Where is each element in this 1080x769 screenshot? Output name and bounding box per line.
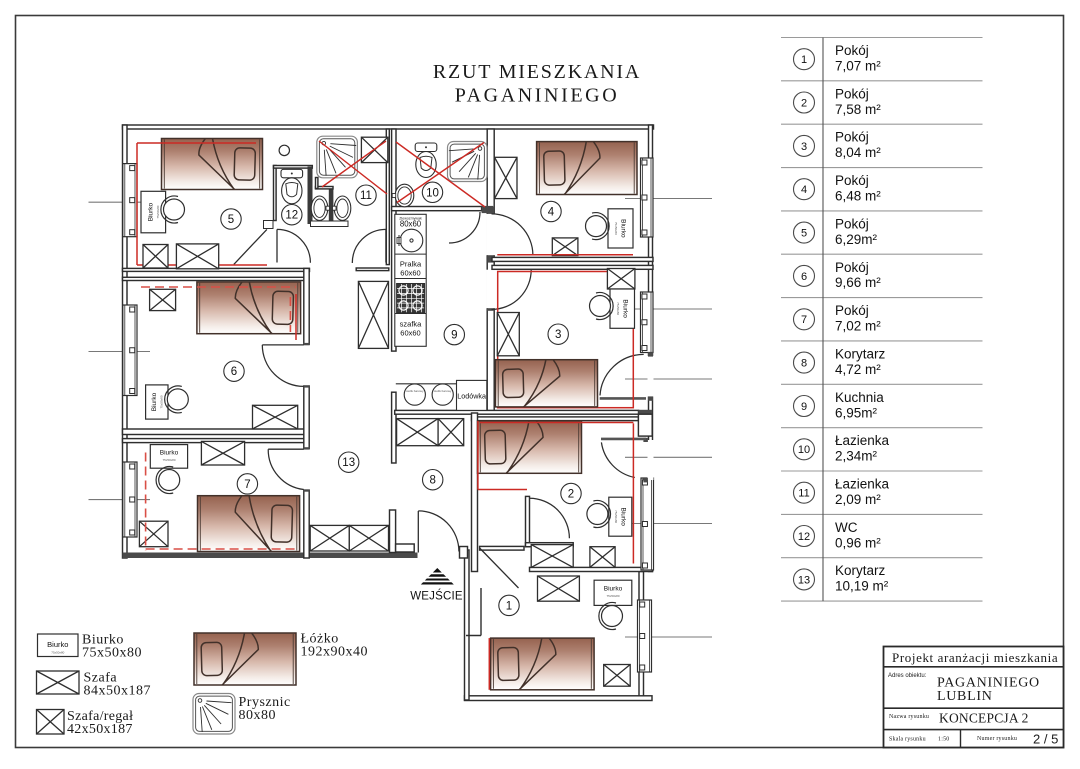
svg-text:80x60: 80x60 (400, 220, 422, 229)
svg-text:10: 10 (426, 187, 439, 199)
svg-text:9,66 m²: 9,66 m² (835, 275, 881, 290)
svg-text:2,34m²: 2,34m² (835, 449, 878, 464)
svg-text:12: 12 (798, 531, 810, 543)
svg-text:7: 7 (801, 314, 807, 326)
svg-text:Pokój: Pokój (835, 43, 869, 58)
svg-text:9: 9 (801, 401, 807, 413)
svg-text:75x50x80: 75x50x80 (606, 594, 619, 598)
svg-text:75x50x80: 75x50x80 (616, 302, 620, 315)
svg-text:10: 10 (798, 444, 810, 456)
svg-text:Pralka: Pralka (400, 260, 422, 269)
svg-text:Korytarz: Korytarz (835, 563, 886, 578)
svg-text:12: 12 (285, 210, 298, 222)
svg-text:8: 8 (801, 358, 807, 370)
svg-text:3: 3 (801, 141, 807, 153)
svg-text:13: 13 (342, 457, 355, 469)
svg-text:Pokój: Pokój (835, 173, 869, 188)
svg-text:7,07 m²: 7,07 m² (835, 59, 881, 74)
svg-text:KONCEPCJA 2: KONCEPCJA 2 (939, 711, 1029, 726)
svg-text:Pokój: Pokój (835, 130, 869, 145)
svg-text:6,95m²: 6,95m² (835, 405, 878, 420)
svg-text:75x50x80: 75x50x80 (614, 222, 618, 235)
svg-text:7: 7 (244, 479, 250, 491)
svg-text:0,96 m²: 0,96 m² (835, 535, 881, 550)
svg-text:75x50x80: 75x50x80 (614, 510, 618, 523)
svg-text:Lodówka: Lodówka (457, 392, 486, 401)
svg-text:10,19 m²: 10,19 m² (835, 579, 889, 594)
svg-text:Kuchnia: Kuchnia (835, 390, 884, 405)
svg-text:84x50x187: 84x50x187 (84, 684, 152, 699)
svg-text:11: 11 (360, 190, 372, 202)
svg-text:75x50x80: 75x50x80 (162, 458, 175, 462)
svg-text:Biurko: Biurko (160, 450, 179, 457)
svg-text:13: 13 (798, 574, 810, 586)
svg-text:2,09 m²: 2,09 m² (835, 492, 881, 507)
svg-text:80x80: 80x80 (239, 708, 277, 723)
svg-text:Korytarz: Korytarz (835, 346, 886, 361)
svg-text:LUBLIN: LUBLIN (937, 689, 993, 704)
svg-text:75x50x80: 75x50x80 (51, 651, 64, 655)
svg-text:6,48 m²: 6,48 m² (835, 189, 881, 204)
svg-text:Numer rysunku: Numer rysunku (977, 736, 1017, 742)
svg-text:stolik barowy: stolik barowy (434, 389, 452, 393)
svg-text:Biurko: Biurko (147, 202, 154, 221)
svg-text:Łazienka: Łazienka (835, 433, 890, 448)
svg-text:RZUT MIESZKANIA: RZUT MIESZKANIA (433, 61, 641, 83)
svg-text:75x50x80: 75x50x80 (82, 646, 142, 661)
svg-text:2: 2 (801, 97, 807, 109)
svg-text:Łazienka: Łazienka (835, 477, 890, 492)
svg-text:1: 1 (506, 600, 512, 612)
svg-text:WC: WC (835, 520, 858, 535)
svg-text:5: 5 (228, 214, 234, 226)
svg-text:1:50: 1:50 (938, 737, 949, 743)
svg-text:6: 6 (231, 366, 237, 378)
svg-text:Biurko: Biurko (621, 299, 628, 318)
svg-text:Skala rysunku: Skala rysunku (889, 737, 926, 743)
svg-text:11: 11 (798, 488, 809, 500)
svg-text:Biurko: Biurko (47, 640, 68, 649)
svg-text:6,29m²: 6,29m² (835, 232, 878, 247)
svg-text:4,72 m²: 4,72 m² (835, 362, 881, 377)
svg-text:7,02 m²: 7,02 m² (835, 319, 881, 334)
svg-text:60x60: 60x60 (400, 329, 420, 338)
svg-text:Pokój: Pokój (835, 260, 869, 275)
svg-text:192x90x40: 192x90x40 (301, 645, 369, 660)
svg-text:Biurko: Biurko (620, 219, 627, 238)
svg-text:5: 5 (801, 228, 807, 240)
svg-text:8: 8 (429, 475, 435, 487)
svg-text:Pokój: Pokój (835, 216, 869, 231)
svg-text:60x60: 60x60 (400, 269, 420, 278)
svg-text:WEJŚCIE: WEJŚCIE (410, 590, 463, 603)
svg-text:Biurko: Biurko (151, 392, 158, 411)
svg-text:4: 4 (548, 207, 555, 219)
svg-text:8,04 m²: 8,04 m² (835, 145, 881, 160)
svg-text:9: 9 (451, 330, 457, 342)
svg-text:4: 4 (801, 184, 807, 196)
svg-text:stolik barowy: stolik barowy (406, 389, 424, 393)
svg-text:szafka: szafka (400, 320, 423, 329)
svg-text:2 / 5: 2 / 5 (1033, 732, 1058, 747)
svg-text:PAGANINIEGO: PAGANINIEGO (455, 85, 620, 107)
svg-text:42x50x187: 42x50x187 (67, 722, 133, 737)
svg-text:75x50x80: 75x50x80 (159, 395, 163, 408)
svg-text:2: 2 (568, 489, 574, 501)
svg-text:7,58 m²: 7,58 m² (835, 102, 881, 117)
svg-text:3: 3 (555, 329, 561, 341)
svg-text:Pokój: Pokój (835, 303, 869, 318)
svg-text:Biurko: Biurko (604, 586, 623, 593)
svg-text:1: 1 (801, 54, 807, 66)
svg-text:Adres obiektu:: Adres obiektu: (888, 673, 927, 679)
svg-text:Projekt aranżacji mieszkania: Projekt aranżacji mieszkania (892, 650, 1058, 665)
svg-text:Biurko: Biurko (619, 507, 626, 526)
svg-text:Pokój: Pokój (835, 86, 869, 101)
svg-text:Nazwa rysunku: Nazwa rysunku (889, 714, 929, 720)
svg-text:6: 6 (801, 271, 807, 283)
svg-text:75x50x80: 75x50x80 (156, 205, 160, 218)
